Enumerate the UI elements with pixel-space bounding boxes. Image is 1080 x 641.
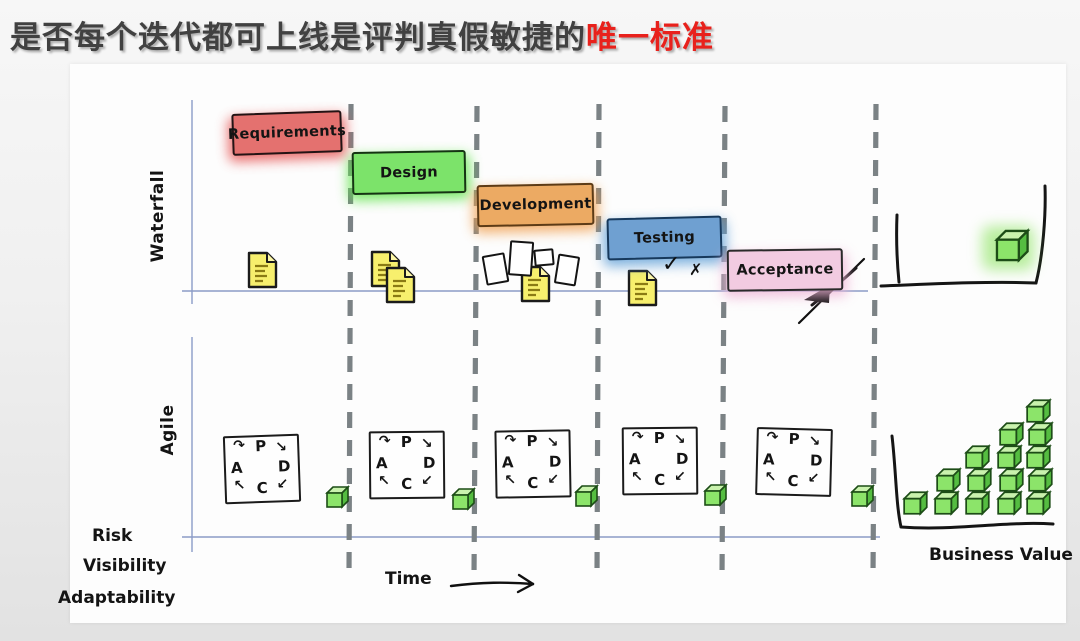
pdca-cycle-box: ↷P↘AD↖C↙	[622, 427, 699, 496]
pdca-text: C	[256, 479, 268, 497]
adaptability-label: Adaptability	[58, 588, 175, 608]
title-highlight: 唯一标准	[586, 20, 714, 55]
pdca-text: P	[654, 429, 665, 447]
pdca-text: ↖	[504, 472, 516, 488]
pdca-cycle-box: ↷P↘AD↖C↙	[369, 431, 446, 500]
pdca-text: C	[527, 474, 538, 492]
pdca-text: A	[376, 454, 388, 472]
increment-cube-icon	[325, 485, 351, 509]
pdca-text: ↙	[807, 470, 819, 486]
pdca-text: D	[676, 450, 689, 468]
pdca-text: ↖	[378, 473, 390, 489]
business-value-label: Business Value	[929, 545, 1073, 565]
business-value-cube-icon	[1025, 490, 1053, 516]
business-value-cube-icon	[1025, 398, 1053, 424]
pdca-text: ↷	[233, 438, 245, 454]
pdca-cycle-box: ↷P↘AD↖C↙	[494, 429, 571, 498]
pdca-text: A	[629, 450, 641, 468]
pdca-text: ↘	[808, 433, 820, 449]
pdca-text: ↘	[275, 439, 287, 455]
pdca-text: ↘	[421, 436, 433, 452]
phase-box-design: Design	[352, 150, 467, 195]
pdca-text: P	[788, 430, 799, 448]
agile-row-label: Agile	[158, 390, 178, 470]
pdca-text: C	[654, 471, 665, 489]
increment-cube-icon	[574, 484, 600, 508]
check-mark-icon: ✓	[662, 252, 680, 277]
business-value-cube-icon	[933, 490, 961, 516]
title-text: 是否每个迭代都可上线是评判真假敏捷的	[10, 20, 586, 55]
business-value-cube-icon	[996, 444, 1024, 470]
time-label: Time	[385, 569, 432, 589]
release-cube-icon	[994, 228, 1032, 263]
risk-label: Risk	[92, 526, 132, 546]
pdca-text: D	[810, 451, 823, 469]
pdca-text: A	[763, 450, 775, 468]
paper-scrap-icon	[508, 240, 534, 277]
business-value-cube-icon	[902, 490, 930, 516]
increment-cube-icon	[451, 487, 477, 511]
pdca-text: A	[502, 453, 514, 471]
pdca-text: D	[423, 454, 436, 472]
cross-mark-icon: ✗	[689, 260, 702, 279]
pdca-text: ↖	[764, 469, 776, 485]
pdca-text: D	[278, 457, 291, 475]
business-value-cube-icon	[964, 490, 992, 516]
business-value-cube-icon	[966, 467, 994, 493]
phase-box-acceptance: Acceptance	[727, 248, 844, 292]
business-value-cube-icon	[935, 467, 963, 493]
pdca-text: ↙	[421, 473, 433, 489]
phase-box-requirements: Requirements	[231, 110, 342, 156]
pdca-text: ↷	[766, 429, 778, 445]
pdca-text: ↙	[276, 476, 288, 492]
pdca-text: P	[401, 433, 412, 451]
paper-scrap-icon	[482, 252, 510, 286]
pdca-cycle-box: ↷P↘AD↖C↙	[223, 434, 301, 505]
pdca-text: P	[526, 432, 537, 450]
business-value-cube-icon	[998, 421, 1026, 447]
pdca-text: ↷	[632, 429, 644, 445]
pdca-cycle-box: ↷P↘AD↖C↙	[755, 427, 833, 497]
business-value-cube-icon	[1025, 444, 1053, 470]
pdca-text: ↙	[547, 472, 559, 488]
phase-label: Requirements	[231, 110, 342, 156]
paper-scrap-icon	[533, 248, 554, 267]
pdca-text: ↘	[546, 435, 558, 451]
pdca-text: P	[255, 437, 267, 455]
business-value-cube-icon	[1027, 467, 1055, 493]
pdca-text: ↷	[379, 433, 391, 449]
pdca-text: C	[401, 475, 412, 493]
pdca-text: A	[231, 459, 243, 477]
pdca-text: ↖	[233, 478, 245, 494]
business-value-cube-icon	[1027, 421, 1055, 447]
pdca-text: ↖	[631, 469, 643, 485]
pdca-text: D	[549, 453, 562, 471]
increment-cube-icon	[703, 483, 729, 507]
phase-box-development: Development	[477, 183, 595, 227]
pdca-text: C	[787, 472, 798, 490]
business-value-cube-icon	[996, 490, 1024, 516]
business-value-cube-icon	[998, 467, 1026, 493]
increment-cube-icon	[850, 484, 876, 508]
visibility-label: Visibility	[83, 556, 167, 576]
diagram-panel	[70, 64, 1066, 623]
pdca-text: ↷	[504, 432, 516, 448]
paper-scrap-icon	[554, 253, 580, 286]
pdca-text: ↘	[674, 432, 686, 448]
phase-label: Development	[477, 183, 595, 227]
phase-label: Acceptance	[727, 248, 844, 292]
waterfall-row-label: Waterfall	[148, 154, 168, 278]
phase-label: Design	[352, 150, 467, 195]
slide: 是否每个迭代都可上线是评判真假敏捷的唯一标准	[0, 0, 1080, 641]
business-value-cube-icon	[964, 444, 992, 470]
page-title: 是否每个迭代都可上线是评判真假敏捷的唯一标准	[10, 12, 1030, 57]
pdca-text: ↙	[674, 469, 686, 485]
